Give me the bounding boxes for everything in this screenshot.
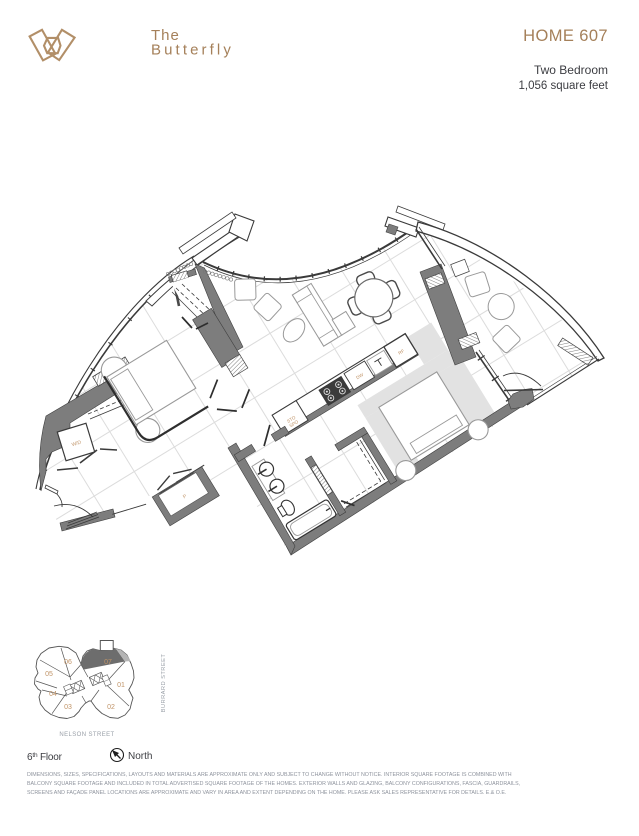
svg-text:04: 04 [49, 691, 57, 698]
svg-text:05: 05 [45, 671, 53, 678]
svg-text:Butterfly: Butterfly [151, 42, 234, 59]
svg-text:HOME 607: HOME 607 [523, 27, 608, 45]
svg-text:6th Floor: 6th Floor [27, 752, 63, 763]
svg-text:01: 01 [117, 682, 125, 689]
svg-text:Two Bedroom: Two Bedroom [534, 63, 608, 77]
svg-text:BURRARD STREET: BURRARD STREET [161, 654, 167, 713]
svg-text:DIMENSIONS, SIZES, SPECIFICATI: DIMENSIONS, SIZES, SPECIFICATIONS, LAYOU… [27, 772, 512, 778]
svg-text:BALCONY SQUARE FOOTAGE AND INC: BALCONY SQUARE FOOTAGE AND INCLUDED IN T… [27, 781, 520, 787]
svg-text:North: North [128, 751, 152, 762]
svg-text:06: 06 [64, 659, 72, 666]
svg-text:NELSON STREET: NELSON STREET [59, 732, 114, 738]
svg-text:1,056 square feet: 1,056 square feet [518, 80, 608, 92]
svg-text:02: 02 [107, 704, 115, 711]
svg-text:SCREENS AND FAÇADE PANEL LOCAT: SCREENS AND FAÇADE PANEL LOCATIONS ARE A… [27, 790, 506, 796]
svg-text:03: 03 [64, 704, 72, 711]
svg-text:07: 07 [104, 659, 112, 666]
